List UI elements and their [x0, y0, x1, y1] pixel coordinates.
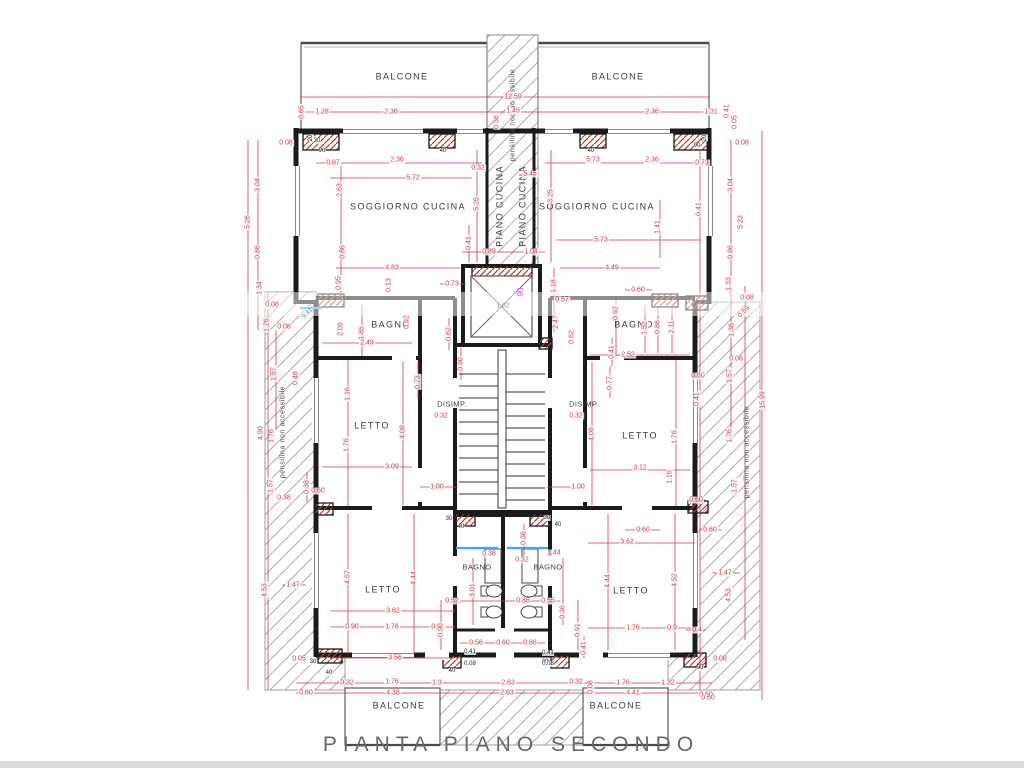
elevator [471, 276, 532, 337]
balcony-top-left [301, 43, 487, 130]
bathroom-fixtures [481, 549, 542, 618]
stairs [459, 350, 545, 508]
balcony-top-right [538, 43, 709, 130]
drawing-title: PIANTA PIANO SECONDO [323, 733, 699, 757]
floorplan-drawing [0, 0, 1024, 768]
bottom-border-strip [0, 761, 1024, 768]
floorplan-canvas: BALCONEBALCONESOGGIORNO CUCINASOGGIORNO … [0, 0, 1024, 768]
